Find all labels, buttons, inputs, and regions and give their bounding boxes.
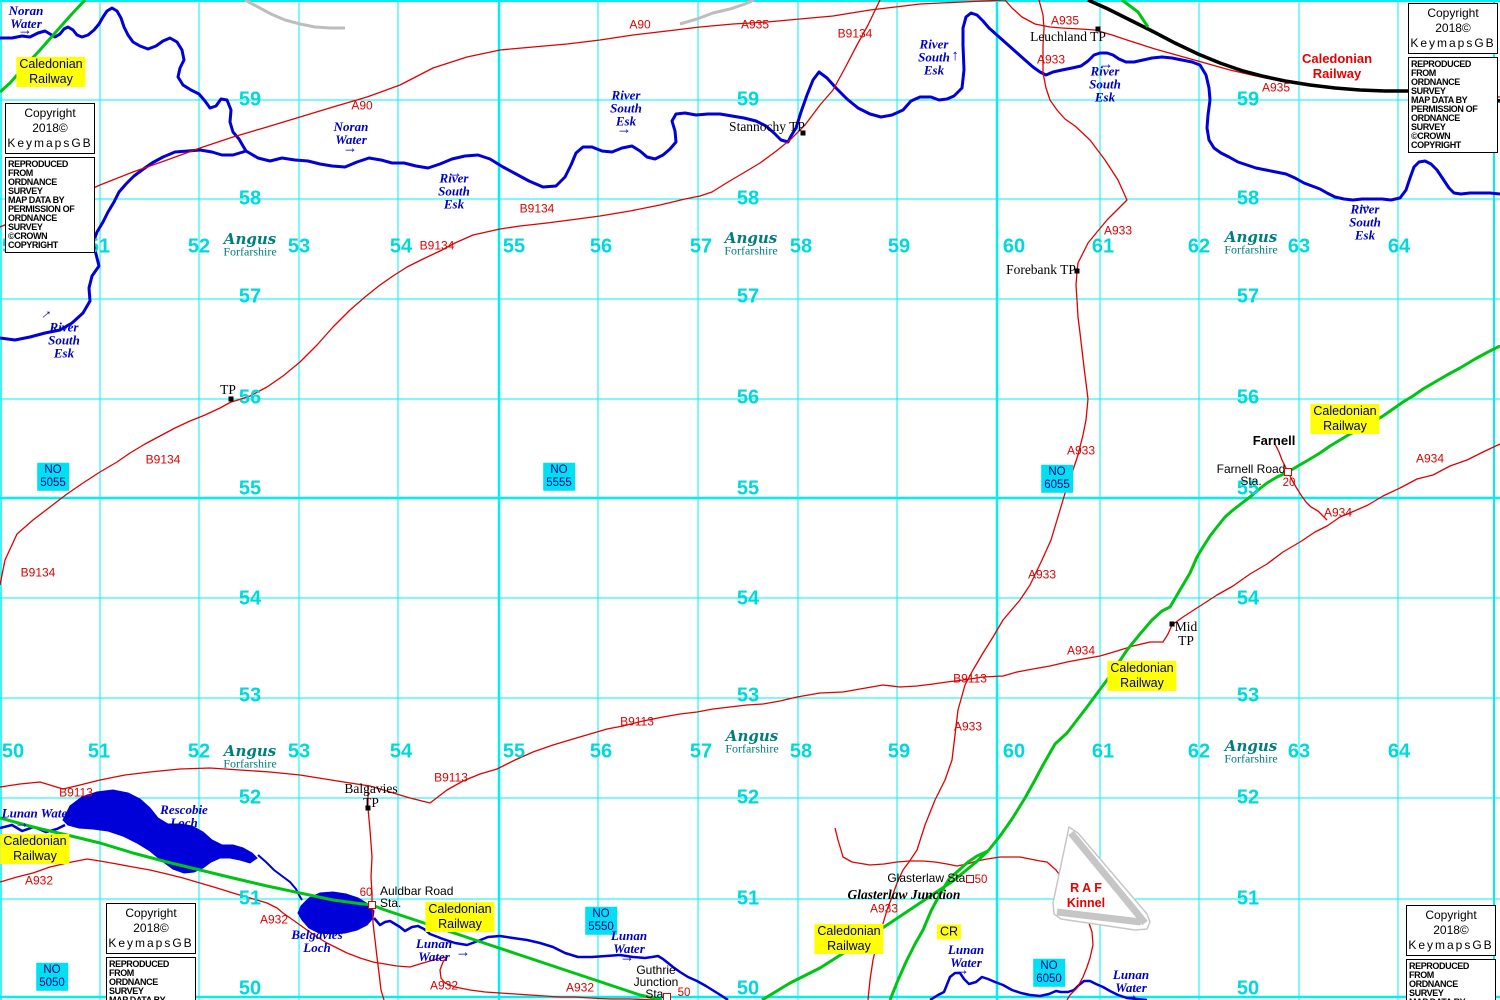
grid-column-number: 58 bbox=[790, 237, 812, 258]
place-label-forebanktp: Forebank TP bbox=[1006, 263, 1076, 277]
copyright-brand: KeymapsGB bbox=[1410, 36, 1496, 51]
grid-row-number: 55 bbox=[239, 479, 261, 500]
copyright-block-top-right: Copyright 2018©KeymapsGB REPRODUCED FROM… bbox=[1408, 3, 1498, 153]
flow-direction-arrow: → bbox=[343, 141, 358, 156]
grid-column-number: 64 bbox=[1388, 237, 1410, 258]
grid-column-number: 50 bbox=[2, 742, 24, 763]
os-notice-line: REPRODUCED FROM bbox=[1409, 962, 1493, 980]
grid-row-number: 51 bbox=[239, 889, 261, 910]
grid-column-number: 61 bbox=[1092, 742, 1114, 763]
grid-column-number: 63 bbox=[1288, 742, 1310, 763]
place-label-guthrie-junction-sta: Guthrie Junction Sta. bbox=[634, 964, 679, 1000]
road-label-b9113: B9113 bbox=[59, 787, 93, 800]
grid-column-number: 57 bbox=[690, 742, 712, 763]
raf-kinnel-label: R A F Kinnel bbox=[1067, 881, 1105, 911]
grid-row-number: 59 bbox=[239, 90, 261, 111]
grid-ref-box: NO 5050 bbox=[36, 963, 68, 991]
os-notice-line: ORDNANCE SURVEY bbox=[1411, 78, 1495, 96]
place-label-stannochytp: Stannochy TP bbox=[729, 120, 805, 134]
copyright-line: Copyright 2018© bbox=[1410, 6, 1496, 36]
os-notice-line: REPRODUCED FROM bbox=[1411, 60, 1495, 78]
grid-column-number: 53 bbox=[288, 237, 310, 258]
region-label-forfarshire: Forfarshire bbox=[223, 246, 276, 259]
grid-row-number: 53 bbox=[239, 686, 261, 707]
place-label-farnell: Farnell bbox=[1253, 434, 1296, 448]
road-label-a933: A933 bbox=[870, 903, 898, 916]
grid-column-number: 55 bbox=[503, 742, 525, 763]
road-label-a932: A932 bbox=[430, 980, 458, 993]
grid-row-number: 57 bbox=[239, 287, 261, 308]
grid-row-number: 58 bbox=[737, 189, 759, 210]
grid-column-number: 61 bbox=[1092, 237, 1114, 258]
flow-direction-arrow: → bbox=[456, 945, 471, 960]
place-label-glasterlawjunction: Glasterlaw Junction bbox=[848, 888, 961, 902]
place-label-farnellroad-sta: Farnell Road Sta. bbox=[1217, 463, 1286, 487]
flow-direction-arrow: → bbox=[448, 166, 463, 181]
grid-row-number: 52 bbox=[737, 788, 759, 809]
grid-column-number: 62 bbox=[1188, 237, 1210, 258]
grid-row-number: 55 bbox=[737, 479, 759, 500]
grid-column-number: 55 bbox=[503, 237, 525, 258]
grid-column-number: 60 bbox=[1003, 237, 1025, 258]
river-label-lunan-water: Lunan Water bbox=[416, 937, 452, 963]
copyright-brand: KeymapsGB bbox=[1408, 938, 1494, 953]
region-label-forfarshire: Forfarshire bbox=[724, 245, 777, 258]
grid-column-number: 56 bbox=[590, 237, 612, 258]
grid-row-number: 57 bbox=[1237, 287, 1259, 308]
os-notice-line: MAP DATA BY bbox=[109, 996, 193, 1000]
flow-direction-arrow: → bbox=[955, 963, 970, 978]
region-label-forfarshire: Forfarshire bbox=[725, 743, 778, 756]
grid-row-number: 51 bbox=[1237, 889, 1259, 910]
grid-column-number: 54 bbox=[390, 237, 412, 258]
road-label-a933: A933 bbox=[1028, 569, 1056, 582]
grid-column-number: 57 bbox=[690, 237, 712, 258]
flow-direction-arrow: → bbox=[620, 950, 635, 965]
railway-station-marker bbox=[966, 875, 974, 883]
grid-ref-box: NO 5055 bbox=[37, 463, 69, 491]
os-notice-line: ORDNANCE SURVEY bbox=[8, 178, 92, 196]
map-canvas: 5051525354555657585960616263645051525354… bbox=[0, 0, 1500, 1000]
grid-ref-box: NO 6055 bbox=[1041, 465, 1073, 493]
os-notice-line: ORDNANCE SURVEY bbox=[8, 214, 92, 232]
os-notice-line: ORDNANCE SURVEY bbox=[1411, 114, 1495, 132]
copyright-line: Copyright 2018© bbox=[7, 106, 93, 136]
os-notice-line: REPRODUCED FROM bbox=[8, 160, 92, 178]
grid-row-number: 56 bbox=[1237, 388, 1259, 409]
grid-row-number: 54 bbox=[239, 589, 261, 610]
flow-direction-arrow: → bbox=[1358, 198, 1373, 213]
railway-label-caledonian: Caledonian Railway bbox=[0, 834, 69, 864]
place-label-tp: TP bbox=[220, 383, 236, 397]
railway-label-caledonian: Caledonian Railway bbox=[16, 57, 85, 87]
copyright-brand: KeymapsGB bbox=[7, 136, 93, 151]
grid-row-number: 54 bbox=[1237, 589, 1259, 610]
river-label-rescobie-loch: Rescobie Loch bbox=[160, 803, 208, 829]
grid-column-number: 52 bbox=[188, 237, 210, 258]
triangulation-point-marker bbox=[801, 131, 806, 136]
grid-column-number: 52 bbox=[188, 742, 210, 763]
grid-column-number: 63 bbox=[1288, 237, 1310, 258]
grid-row-number: 50 bbox=[1237, 979, 1259, 1000]
copyright-block-top-left: Copyright 2018©KeymapsGB REPRODUCED FROM… bbox=[5, 103, 95, 253]
road-label-a934: A934 bbox=[1416, 453, 1444, 466]
grid-ref-box: NO 6050 bbox=[1033, 959, 1065, 987]
road-label-b9134: B9134 bbox=[420, 240, 455, 253]
road-label-a90: A90 bbox=[629, 19, 650, 32]
road-number-marker: 50 bbox=[678, 987, 691, 999]
road-label-b9113: B9113 bbox=[620, 716, 654, 729]
road-label-a932: A932 bbox=[566, 982, 594, 995]
river-label-lunan-water: Lunan Water bbox=[2, 807, 73, 820]
flow-direction-arrow: → bbox=[18, 23, 33, 38]
place-label-auldbarroad-sta: Auldbar Road Sta. bbox=[380, 885, 453, 909]
grid-row-number: 59 bbox=[737, 90, 759, 111]
grid-row-number: 58 bbox=[1237, 189, 1259, 210]
place-label-leuchlandtp: Leuchland TP bbox=[1030, 30, 1106, 44]
triangulation-point-marker bbox=[229, 397, 234, 402]
grid-column-number: 59 bbox=[888, 237, 910, 258]
grid-column-number: 51 bbox=[88, 742, 110, 763]
region-label-forfarshire: Forfarshire bbox=[1224, 244, 1277, 257]
place-label-mid-tp: Mid TP bbox=[1175, 620, 1198, 648]
road-label-a935: A935 bbox=[1051, 15, 1079, 28]
region-label-forfarshire: Forfarshire bbox=[1224, 753, 1277, 766]
grid-row-number: 52 bbox=[1237, 788, 1259, 809]
road-label-a935: A935 bbox=[741, 19, 769, 32]
road-label-a90: A90 bbox=[351, 100, 372, 113]
railway-label-caledonian: Caledonian Railway bbox=[1107, 661, 1176, 691]
road-label-a933: A933 bbox=[1067, 445, 1095, 458]
place-label-glasterlawsta: Glasterlaw Sta. bbox=[887, 872, 968, 884]
road-label-b9113: B9113 bbox=[953, 673, 987, 686]
os-notice-line: REPRODUCED FROM bbox=[109, 960, 193, 978]
grid-column-number: 58 bbox=[790, 742, 812, 763]
triangulation-point-marker bbox=[1075, 269, 1080, 274]
grid-row-number: 52 bbox=[239, 788, 261, 809]
triangulation-point-marker bbox=[1096, 27, 1101, 32]
grid-row-number: 57 bbox=[737, 287, 759, 308]
road-label-a933: A933 bbox=[1104, 225, 1132, 238]
region-label-forfarshire: Forfarshire bbox=[223, 758, 276, 771]
copyright-block-bottom-right: Copyright 2018©KeymapsGB REPRODUCED FROM… bbox=[1406, 905, 1496, 1000]
os-notice-line: ORDNANCE SURVEY bbox=[109, 978, 193, 996]
grid-row-number: 56 bbox=[239, 388, 261, 409]
grid-row-number: 50 bbox=[737, 979, 759, 1000]
triangulation-point-marker bbox=[366, 806, 371, 811]
os-notice-line: ORDNANCE SURVEY bbox=[1409, 980, 1493, 998]
railway-station-marker bbox=[663, 993, 671, 1000]
grid-column-number: 54 bbox=[390, 742, 412, 763]
grid-row-number: 54 bbox=[737, 589, 759, 610]
road-label-b9134: B9134 bbox=[838, 28, 873, 41]
copyright-line: Copyright 2018© bbox=[1408, 908, 1494, 938]
grid-row-number: 58 bbox=[239, 189, 261, 210]
grid-row-number: 59 bbox=[1237, 90, 1259, 111]
road-label-a933: A933 bbox=[954, 721, 982, 734]
grid-row-number: 53 bbox=[1237, 686, 1259, 707]
os-notice-line: ©CROWN COPYRIGHT bbox=[1411, 132, 1495, 150]
road-label-b9134: B9134 bbox=[146, 454, 181, 467]
road-label-b9134: B9134 bbox=[21, 567, 56, 580]
grid-column-number: 64 bbox=[1388, 742, 1410, 763]
road-label-a932: A932 bbox=[25, 875, 53, 888]
railway-label-cr: CR bbox=[937, 925, 961, 940]
grid-row-number: 50 bbox=[239, 979, 261, 1000]
road-label-a933: A933 bbox=[1037, 54, 1065, 67]
triangulation-point-marker bbox=[1170, 622, 1175, 627]
road-label-b9134: B9134 bbox=[520, 203, 555, 216]
place-label-balgavies-tp: Balgavies TP bbox=[344, 782, 397, 810]
railway-station-marker bbox=[368, 901, 376, 909]
road-number-marker: 60 bbox=[360, 887, 373, 899]
grid-column-number: 60 bbox=[1003, 742, 1025, 763]
railway-station-marker bbox=[1284, 468, 1292, 476]
flow-direction-arrow: → bbox=[946, 49, 961, 64]
grid-column-number: 62 bbox=[1188, 742, 1210, 763]
road-label-a932: A932 bbox=[260, 914, 288, 927]
road-label-a934: A934 bbox=[1324, 507, 1352, 520]
copyright-line: Copyright 2018© bbox=[108, 906, 194, 936]
os-notice-line: ©CROWN COPYRIGHT bbox=[8, 232, 92, 250]
flow-direction-arrow: → bbox=[1099, 57, 1114, 72]
road-label-a935: A935 bbox=[1262, 82, 1290, 95]
flow-direction-arrow: → bbox=[15, 816, 30, 831]
river-label-belgavies-loch: Belgavies Loch bbox=[291, 928, 342, 954]
river-label-river-south-esk: River South Esk bbox=[48, 321, 80, 360]
flow-direction-arrow: → bbox=[1124, 988, 1139, 1000]
railway-label-caledonian: Caledonian Railway bbox=[1302, 52, 1372, 82]
map-labels-layer: 5051525354555657585960616263645051525354… bbox=[0, 0, 1500, 1000]
grid-column-number: 53 bbox=[288, 742, 310, 763]
grid-column-number: 59 bbox=[888, 742, 910, 763]
grid-ref-box: NO 5555 bbox=[543, 463, 575, 491]
copyright-block-bottom-left: Copyright 2018©KeymapsGB REPRODUCED FROM… bbox=[106, 903, 196, 1000]
road-number-marker: 50 bbox=[975, 874, 988, 886]
grid-row-number: 53 bbox=[737, 686, 759, 707]
railway-label-caledonian: Caledonian Railway bbox=[814, 924, 883, 954]
railway-label-caledonian: Caledonian Railway bbox=[1310, 404, 1379, 434]
copyright-brand: KeymapsGB bbox=[108, 936, 194, 951]
flow-direction-arrow: → bbox=[617, 122, 632, 137]
road-label-b9113: B9113 bbox=[434, 772, 468, 785]
grid-row-number: 51 bbox=[737, 889, 759, 910]
grid-row-number: 56 bbox=[737, 388, 759, 409]
grid-column-number: 56 bbox=[590, 742, 612, 763]
road-label-a934: A934 bbox=[1067, 645, 1095, 658]
